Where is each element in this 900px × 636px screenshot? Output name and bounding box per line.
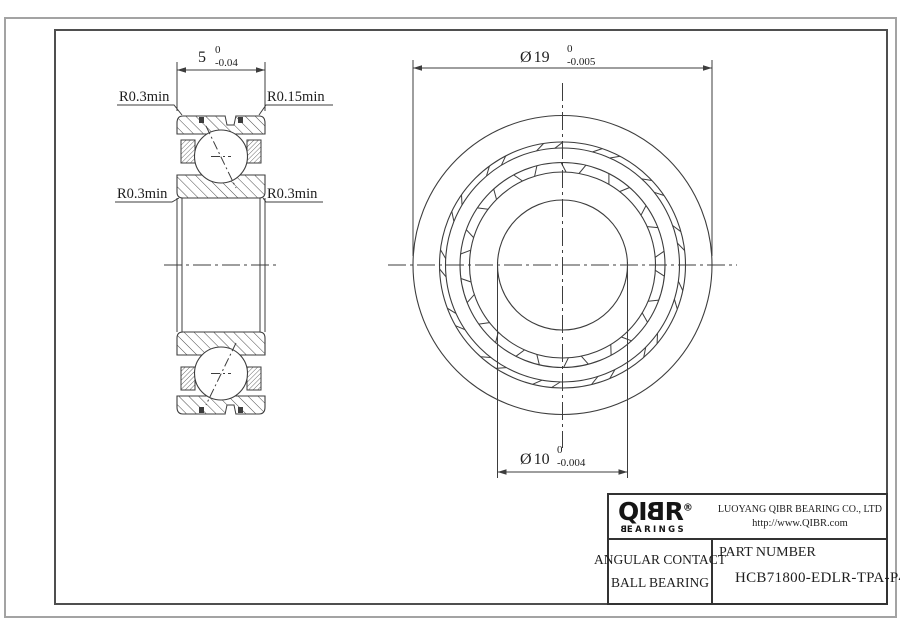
width-dim-upper-tol: 0 [215, 44, 221, 56]
company-website: http://www.QIBR.com [752, 518, 848, 529]
cage-section-bottom-left [181, 367, 195, 390]
seal-anchor-mark [238, 407, 243, 413]
part-number-label: PART NUMBER [719, 545, 900, 561]
radius-label-bottom-left: R0.3min [117, 186, 168, 202]
arrowhead-left [177, 67, 186, 72]
arrowhead-left [498, 469, 507, 474]
seal-anchor-mark [199, 117, 204, 123]
arrowhead-right [256, 67, 265, 72]
width-dim-lower-tol: -0.04 [215, 57, 238, 69]
cage-section-bottom-right [247, 367, 261, 390]
qibr-logo: QIBR® [618, 499, 718, 524]
part-number-cell: PART NUMBER HCB71800-EDLR-TPA-P4 [713, 540, 900, 603]
title-block-header-row: QIBR® BEARINGS LUOYANG QIBR BEARING CO.,… [609, 495, 886, 538]
registered-mark-icon: ® [683, 502, 693, 513]
company-info: LUOYANG QIBR BEARING CO., LTD http://www… [718, 504, 886, 529]
bore-dim-upper-tol: 0 [557, 444, 563, 456]
title-block-detail-row: ANGULAR CONTACT BALL BEARING PART NUMBER… [609, 538, 886, 603]
arrowhead-right [703, 65, 712, 70]
part-number-value: HCB71800-EDLR-TPA-P4 [719, 570, 900, 587]
radius-label-top-right: R0.15min [267, 89, 325, 105]
od-dim-upper-tol: 0 [567, 43, 573, 55]
section-view: 5 0 -0.04 R0.3min R0.15min R0.3min R0.3m… [115, 44, 333, 416]
width-dim-value: 5 [198, 49, 206, 66]
qibr-logo-subtext: BEARINGS [618, 525, 718, 535]
product-type-line1: ANGULAR CONTACT [594, 549, 726, 572]
cage-section-top-left [181, 140, 195, 163]
bore-dim-lower-tol: -0.004 [557, 457, 586, 469]
ball-top [195, 130, 248, 183]
leader-top-left [117, 105, 182, 115]
od-dim-lower-tol: -0.005 [567, 56, 596, 68]
cage-section-top-right [247, 140, 261, 163]
arrowhead-left [413, 65, 422, 70]
leader-top-right [259, 105, 333, 115]
product-type: ANGULAR CONTACT BALL BEARING [609, 540, 713, 603]
product-type-line2: BALL BEARING [611, 572, 709, 595]
radius-label-bottom-right: R0.3min [267, 186, 318, 202]
arrowhead-right [619, 469, 628, 474]
ball-bottom [195, 347, 248, 400]
od-dim-value: Ø19 [520, 49, 550, 66]
bearing-drawing-sheet: { "sheet": { "left_view": { "width_dim":… [0, 0, 900, 636]
company-name: LUOYANG QIBR BEARING CO., LTD [718, 504, 882, 515]
bore-dim-value: Ø10 [520, 451, 550, 468]
front-view: Ø19 0 -0.005 Ø10 0 -0.004 [388, 43, 737, 478]
seal-anchor-mark [199, 407, 204, 413]
radius-label-top-left: R0.3min [119, 89, 170, 105]
width-dimension: 5 0 -0.04 [177, 44, 265, 111]
seal-anchor-mark [238, 117, 243, 123]
company-logo: QIBR® BEARINGS [609, 499, 718, 535]
title-block: QIBR® BEARINGS LUOYANG QIBR BEARING CO.,… [607, 493, 888, 605]
